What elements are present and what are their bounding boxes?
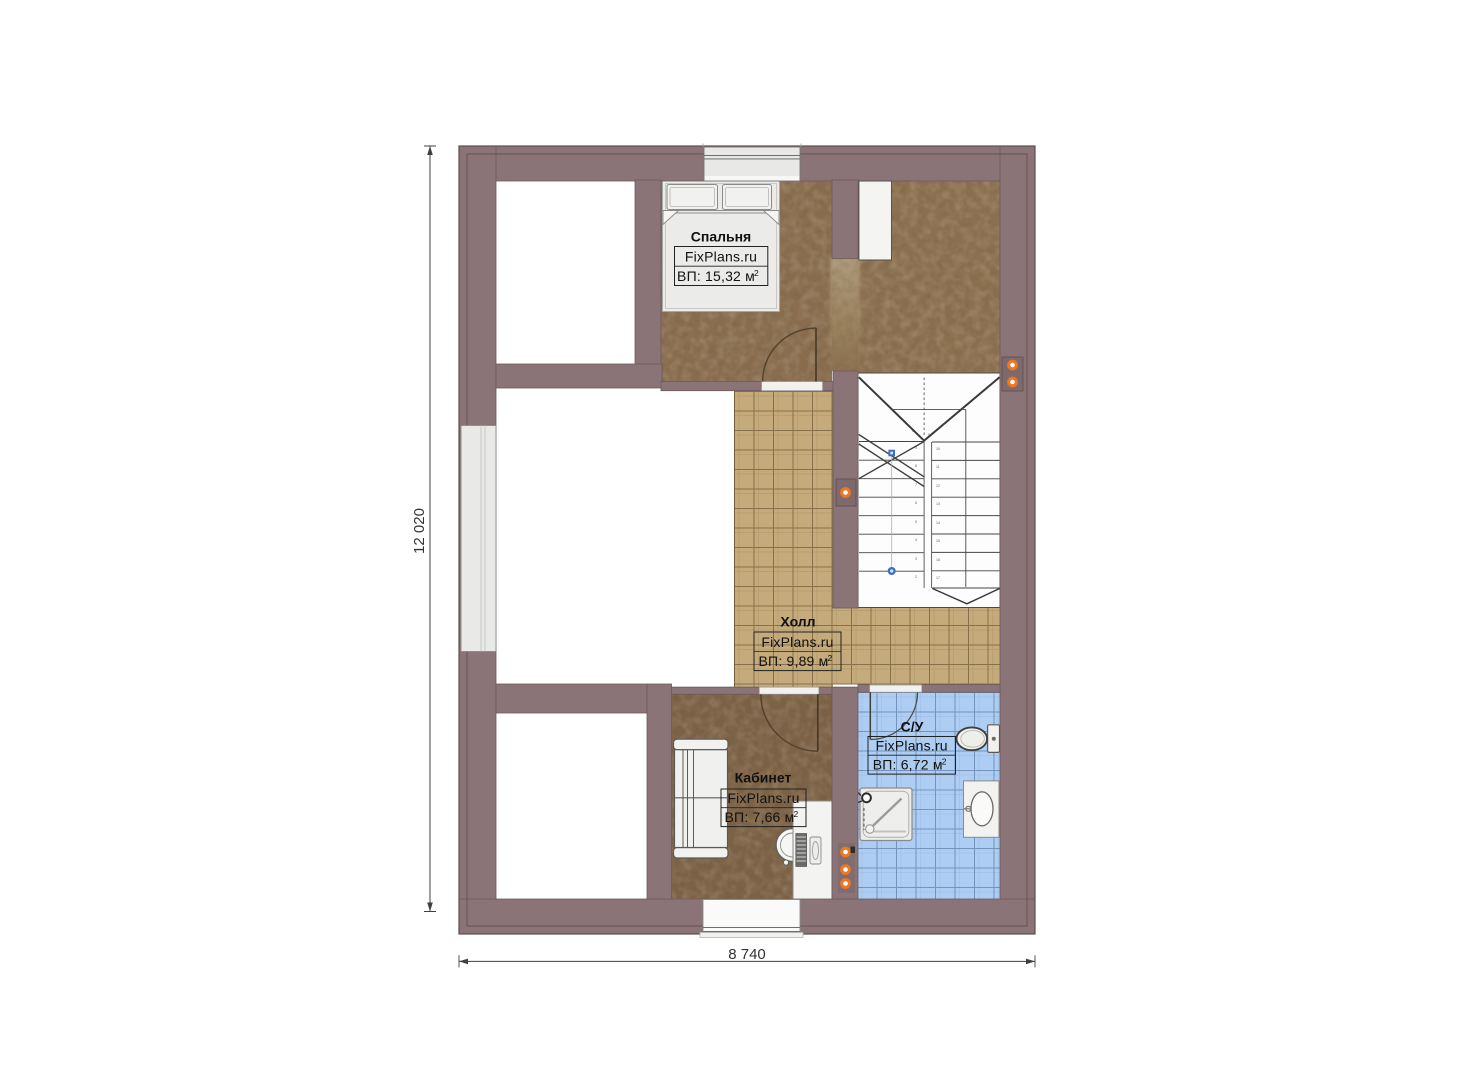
svg-text:12: 12 <box>936 484 940 488</box>
svg-text:2: 2 <box>915 575 917 579</box>
svg-text:ВП: 6,72 м: ВП: 6,72 м <box>873 757 943 773</box>
svg-text:ВП: 7,66 м: ВП: 7,66 м <box>725 809 795 825</box>
svg-text:8: 8 <box>915 464 917 468</box>
svg-text:2: 2 <box>794 809 799 819</box>
svg-text:9: 9 <box>928 433 930 437</box>
svg-text:FixPlans.ru: FixPlans.ru <box>761 634 833 650</box>
svg-text:13: 13 <box>936 502 940 506</box>
svg-text:Холл: Холл <box>780 614 815 630</box>
svg-text:17: 17 <box>936 576 940 580</box>
svg-text:С/У: С/У <box>901 719 924 735</box>
svg-text:4: 4 <box>915 538 917 542</box>
svg-text:FixPlans.ru: FixPlans.ru <box>727 790 799 806</box>
svg-text:Спальня: Спальня <box>691 229 751 245</box>
svg-text:16: 16 <box>936 558 940 562</box>
svg-text:7: 7 <box>915 483 917 487</box>
svg-text:11: 11 <box>936 465 940 469</box>
svg-text:FixPlans.ru: FixPlans.ru <box>876 738 948 754</box>
svg-text:6: 6 <box>915 501 917 505</box>
svg-text:Кабинет: Кабинет <box>735 770 792 786</box>
svg-text:2: 2 <box>828 653 833 663</box>
svg-text:2: 2 <box>942 757 947 767</box>
svg-text:12 020: 12 020 <box>411 508 428 554</box>
svg-text:4: 4 <box>912 429 914 433</box>
svg-text:9: 9 <box>915 446 917 450</box>
svg-text:5: 5 <box>915 520 917 524</box>
svg-text:10: 10 <box>936 447 940 451</box>
svg-text:8 740: 8 740 <box>728 946 766 963</box>
svg-text:15: 15 <box>936 539 940 543</box>
svg-text:3: 3 <box>915 557 917 561</box>
svg-text:2: 2 <box>754 268 759 278</box>
svg-text:FixPlans.ru: FixPlans.ru <box>685 249 757 265</box>
svg-text:ВП: 15,32 м: ВП: 15,32 м <box>677 268 755 284</box>
svg-text:14: 14 <box>936 521 940 525</box>
svg-text:ВП: 9,89 м: ВП: 9,89 м <box>759 653 829 669</box>
